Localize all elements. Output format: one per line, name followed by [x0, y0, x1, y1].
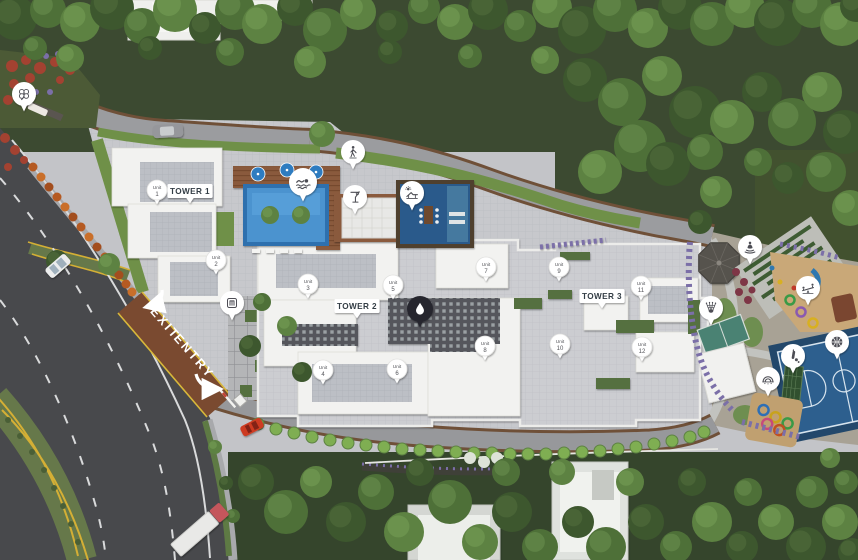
hedge-bush: [684, 431, 696, 443]
orange-shrub: [29, 163, 38, 172]
parked-car: [153, 124, 184, 139]
hedge-bush: [594, 445, 606, 457]
hedge-bush: [396, 443, 408, 455]
unit-marker-word: Unit: [389, 280, 398, 286]
hedge-bush: [612, 443, 624, 455]
hedge-bush: [360, 439, 372, 451]
white-flower-bush: [478, 456, 490, 468]
unit-marker-word: Unit: [153, 185, 162, 191]
hedge-bush: [414, 444, 426, 456]
unit-marker-number: 10: [557, 346, 564, 352]
tower-label-text: TOWER 2: [337, 302, 377, 311]
unit-marker-number: 12: [639, 349, 646, 355]
orange-shrub: [77, 223, 86, 232]
unit-marker-word: Unit: [637, 281, 646, 287]
unit-marker-word: Unit: [555, 262, 564, 268]
orange-shrub: [45, 183, 54, 192]
orange-shrub: [37, 173, 46, 182]
hedge-bush: [270, 423, 282, 435]
hedge-bush: [648, 438, 660, 450]
tower-label-text: TOWER 1: [170, 187, 210, 196]
orange-shrub: [85, 233, 94, 242]
hedge-bush: [576, 446, 588, 458]
hedge-bush: [522, 448, 534, 460]
unit-marker-word: Unit: [481, 341, 490, 347]
hedge-bush: [558, 447, 570, 459]
hedge-bush: [698, 426, 710, 438]
orange-shrub: [128, 288, 137, 297]
unit-marker-number: 11: [638, 288, 645, 294]
hedge-bush: [378, 441, 390, 453]
unit-marker-word: Unit: [482, 262, 491, 268]
hedge-bush: [324, 434, 336, 446]
toddler-rings-area: [744, 392, 804, 448]
orange-shrub: [93, 243, 102, 252]
unit-marker-word: Unit: [556, 339, 565, 345]
hedge-bush: [342, 437, 354, 449]
site-plan-page: EXITENTRY Unit1Unit2Unit3Unit4Unit5Unit6…: [0, 0, 858, 560]
hedge-bush: [450, 446, 462, 458]
unit-marker-word: Unit: [393, 364, 402, 370]
unit-marker-word: Unit: [638, 342, 647, 348]
hedge-bush: [540, 448, 552, 460]
master-site-plan: EXITENTRY Unit1Unit2Unit3Unit4Unit5Unit6…: [0, 0, 858, 560]
tower-label-text: TOWER 3: [582, 292, 622, 301]
unit-marker-word: Unit: [319, 365, 328, 371]
hedge-bush: [288, 427, 300, 439]
orange-shrub: [61, 203, 70, 212]
unit-marker-word: Unit: [212, 255, 221, 261]
basketball-icon: [832, 337, 843, 348]
gazebo: [699, 243, 740, 284]
orange-shrub: [122, 280, 131, 289]
unit-marker-word: Unit: [304, 279, 313, 285]
pool-area: [233, 163, 340, 253]
orange-shrub: [53, 193, 62, 202]
hedge-bush: [666, 435, 678, 447]
hedge-bush: [432, 445, 444, 457]
terrace-table: [424, 206, 433, 224]
hedge-bush: [306, 431, 318, 443]
orange-shrub: [69, 213, 78, 222]
hedge-bush: [630, 441, 642, 453]
white-flower-bush: [464, 452, 476, 464]
